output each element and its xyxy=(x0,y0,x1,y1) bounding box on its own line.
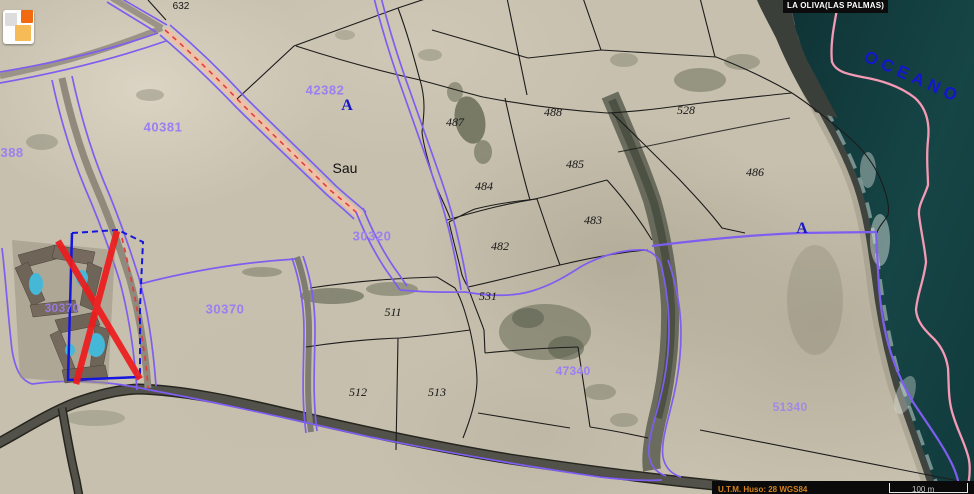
cadastral-code-40381: 40381 xyxy=(144,121,183,134)
map-viewport[interactable]: 632 42382 A 40381 30388 Sau 487 488 528 … xyxy=(0,0,974,494)
logo-amber-square-icon xyxy=(15,25,31,41)
cadastral-code-30370-hotel: 30370 xyxy=(45,302,80,314)
map-canvas[interactable] xyxy=(0,0,974,494)
parcel-number-486: 486 xyxy=(746,166,764,178)
parcel-number-488: 488 xyxy=(544,106,562,118)
parcel-number-484: 484 xyxy=(475,180,493,192)
scale-tick-right xyxy=(967,483,968,493)
cadastral-code-47340: 47340 xyxy=(556,365,591,377)
parcel-number-528: 528 xyxy=(677,104,695,116)
scale-bar-line xyxy=(889,492,967,493)
place-name-label: Sau xyxy=(333,161,358,175)
zone-marker-a-east: A xyxy=(796,221,808,237)
road-number-label: 632 xyxy=(173,2,190,12)
cadastral-code-30370-field: 30370 xyxy=(206,303,245,316)
municipality-bar: LA OLIVA(LAS PALMAS) xyxy=(783,0,888,13)
parcel-number-483: 483 xyxy=(584,214,602,226)
map-app-logo-button[interactable] xyxy=(3,10,34,44)
ocean xyxy=(757,0,974,494)
parcel-number-482: 482 xyxy=(491,240,509,252)
logo-orange-square-icon xyxy=(21,10,33,23)
utm-zone-label: U.T.M. Huso: 28 WGS84 xyxy=(718,485,807,494)
status-bar: U.T.M. Huso: 28 WGS84 100 m xyxy=(712,481,974,494)
parcel-number-531: 531 xyxy=(479,290,497,302)
parcel-number-512: 512 xyxy=(349,386,367,398)
cadastral-code-42382: 42382 xyxy=(306,84,345,97)
parcel-number-485: 485 xyxy=(566,158,584,170)
cadastral-code-30320: 30320 xyxy=(353,230,392,243)
cadastral-code-51340: 51340 xyxy=(773,401,808,413)
cadastral-code-30388: 30388 xyxy=(0,146,24,159)
parcel-number-513: 513 xyxy=(428,386,446,398)
parcel-number-511: 511 xyxy=(384,306,401,318)
parcel-number-487: 487 xyxy=(446,116,464,128)
zone-marker-a-west: A xyxy=(341,98,353,114)
